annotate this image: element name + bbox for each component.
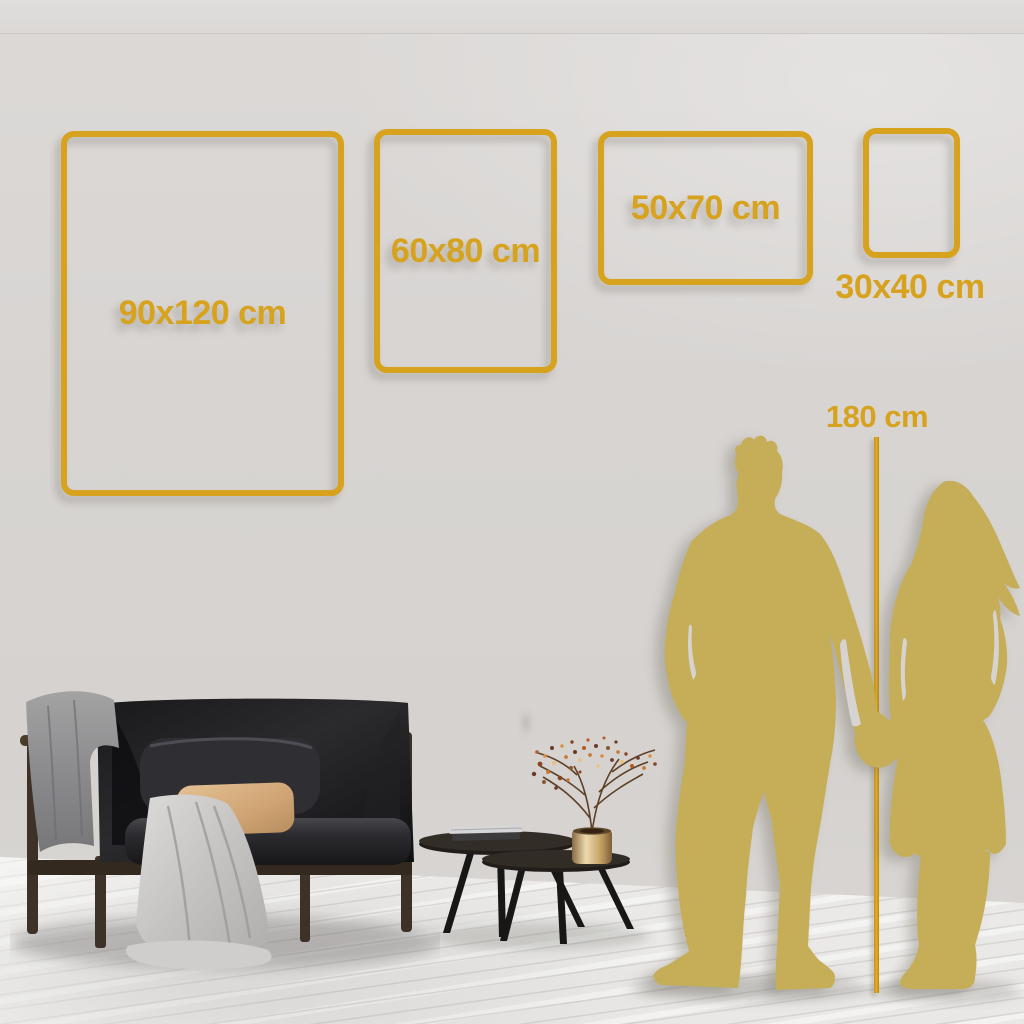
sofa-illustration (10, 680, 440, 980)
woman-legs (900, 846, 990, 989)
ceiling-line (0, 0, 1024, 34)
size-label-60x80: 60x80 cm (391, 232, 540, 271)
size-label-90x120: 90x120 cm (119, 294, 287, 333)
size-label-30x40: 30x40 cm (830, 268, 990, 307)
stacked-books (449, 825, 523, 841)
brass-vase (572, 830, 612, 864)
couple-silhouette-icon (630, 430, 1024, 1005)
size-label-50x70: 50x70 cm (631, 189, 780, 228)
size-frame-60x80: 60x80 cm (374, 129, 557, 373)
size-frame-30x40 (863, 128, 960, 258)
tables-floor-shadow (430, 922, 650, 950)
size-frame-90x120: 90x120 cm (61, 131, 344, 496)
size-guide-scene: 90x120 cm 60x80 cm 50x70 cm 30x40 cm 180… (0, 0, 1024, 1024)
man-silhouette (653, 436, 899, 990)
size-frame-50x70: 50x70 cm (598, 131, 813, 285)
